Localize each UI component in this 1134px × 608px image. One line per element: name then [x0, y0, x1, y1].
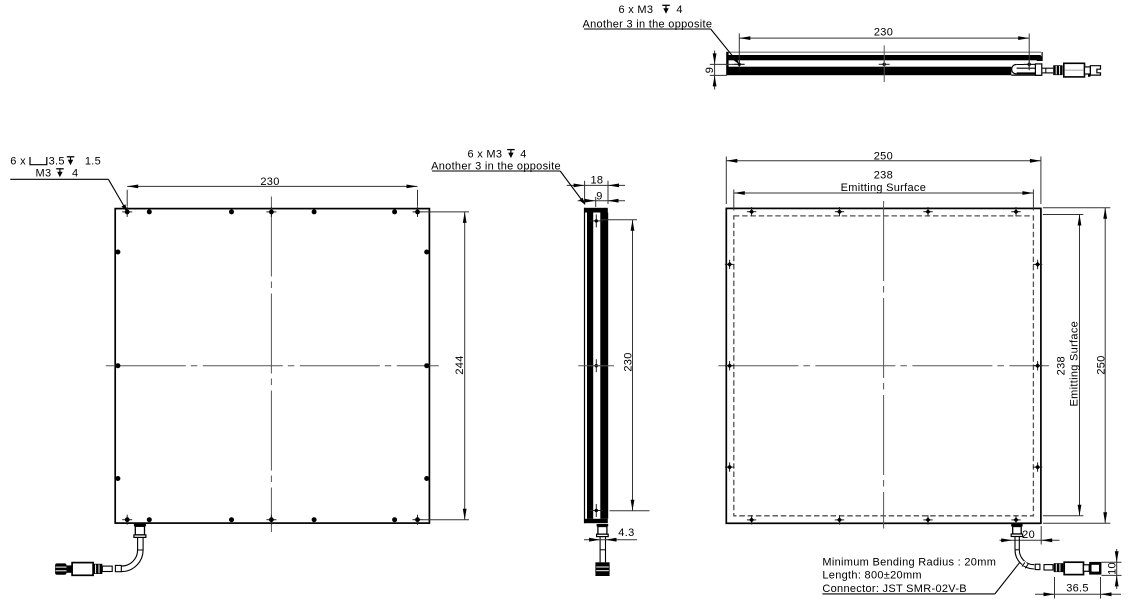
svg-text:3.5: 3.5: [49, 156, 65, 168]
svg-text:20: 20: [1022, 529, 1035, 541]
svg-text:6 x M3: 6 x M3: [468, 149, 503, 161]
svg-text:4.3: 4.3: [618, 527, 634, 539]
svg-text:250: 250: [874, 150, 893, 162]
svg-text:230: 230: [874, 27, 893, 39]
svg-text:244: 244: [454, 355, 466, 374]
svg-text:9: 9: [704, 67, 716, 73]
svg-text:Length: 800±20mm: Length: 800±20mm: [822, 569, 922, 581]
svg-text:Emitting Surface: Emitting Surface: [841, 182, 927, 194]
svg-text:M3: M3: [36, 168, 52, 180]
svg-text:238: 238: [874, 169, 893, 181]
svg-text:18: 18: [590, 174, 603, 186]
svg-text:238: 238: [1055, 356, 1067, 375]
svg-text:Connector: JST SMR-02V-B: Connector: JST SMR-02V-B: [822, 583, 967, 595]
svg-text:230: 230: [260, 176, 279, 188]
svg-text:4: 4: [676, 4, 682, 16]
svg-text:1.5: 1.5: [85, 156, 101, 168]
svg-text:9: 9: [596, 190, 602, 202]
svg-text:Minimum Bending Radius : 20mm: Minimum Bending Radius : 20mm: [822, 556, 996, 568]
svg-text:250: 250: [1096, 355, 1108, 374]
svg-text:6 x: 6 x: [10, 156, 26, 168]
svg-text:10: 10: [1107, 562, 1119, 575]
svg-text:230: 230: [622, 352, 634, 371]
svg-text:6 x M3: 6 x M3: [619, 4, 654, 16]
svg-text:Emitting Surface: Emitting Surface: [1068, 321, 1080, 407]
svg-text:36.5: 36.5: [1066, 583, 1089, 595]
svg-text:4: 4: [72, 168, 78, 180]
svg-text:4: 4: [520, 149, 526, 161]
